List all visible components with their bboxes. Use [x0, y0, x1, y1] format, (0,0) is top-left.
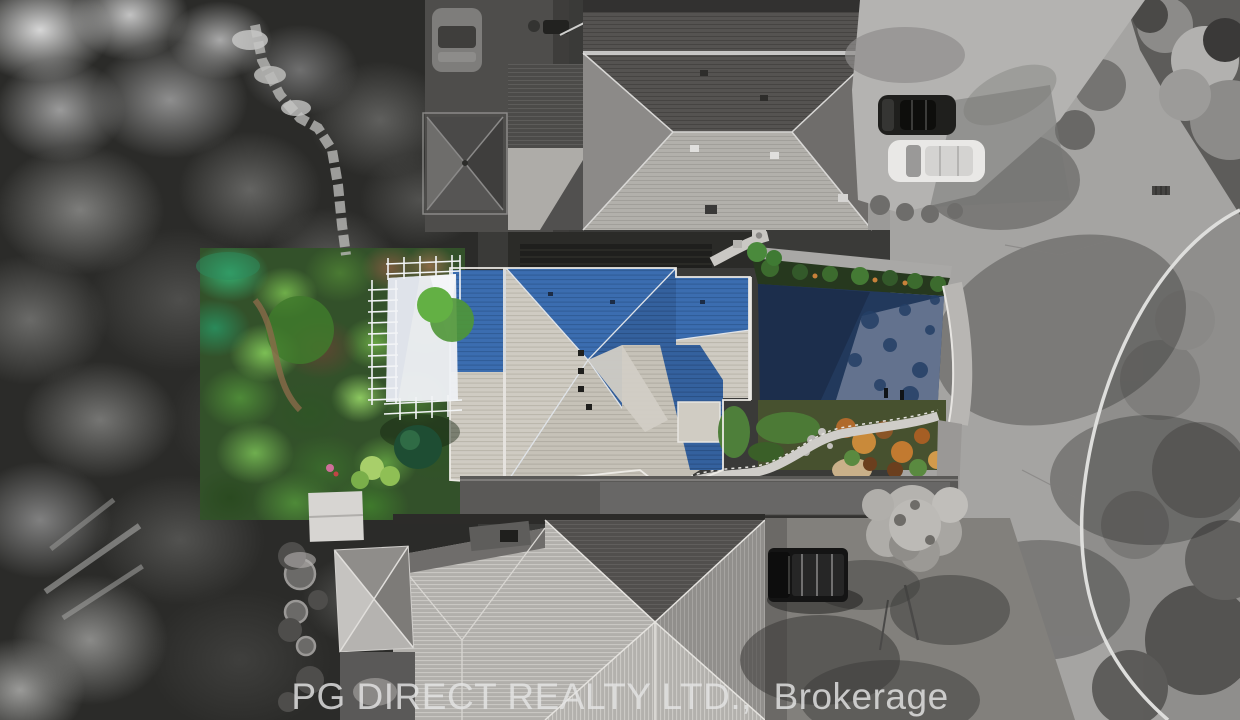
north-gazebo	[423, 113, 507, 214]
garden-shed	[308, 491, 364, 542]
suv-car	[888, 140, 985, 182]
porch-roof	[678, 402, 720, 442]
scene-overlay	[0, 0, 1240, 720]
pink-flower	[326, 464, 334, 472]
backyard-gazebo	[334, 546, 413, 652]
subject-house-roof	[450, 268, 752, 492]
parked-car-courtyard	[432, 8, 482, 72]
roof-wing-shaded	[676, 277, 750, 340]
subject-driveway	[758, 284, 944, 404]
garage-roof-sunlit	[450, 372, 506, 480]
brokerage-watermark: PG DIRECT REALTY LTD., Brokerage	[0, 676, 1240, 718]
fallen-log-highlights	[44, 498, 144, 620]
bbq-grill	[528, 20, 569, 34]
rear-deck-strip	[508, 230, 768, 268]
sedan-car	[878, 95, 956, 135]
shade-sail-pergola	[368, 255, 462, 450]
storm-drain	[1152, 186, 1170, 195]
subject-property	[196, 242, 962, 515]
aerial-photo: PG DIRECT REALTY LTD., Brokerage	[0, 0, 1240, 720]
ac-unit	[752, 230, 766, 241]
stone-path	[232, 25, 346, 255]
